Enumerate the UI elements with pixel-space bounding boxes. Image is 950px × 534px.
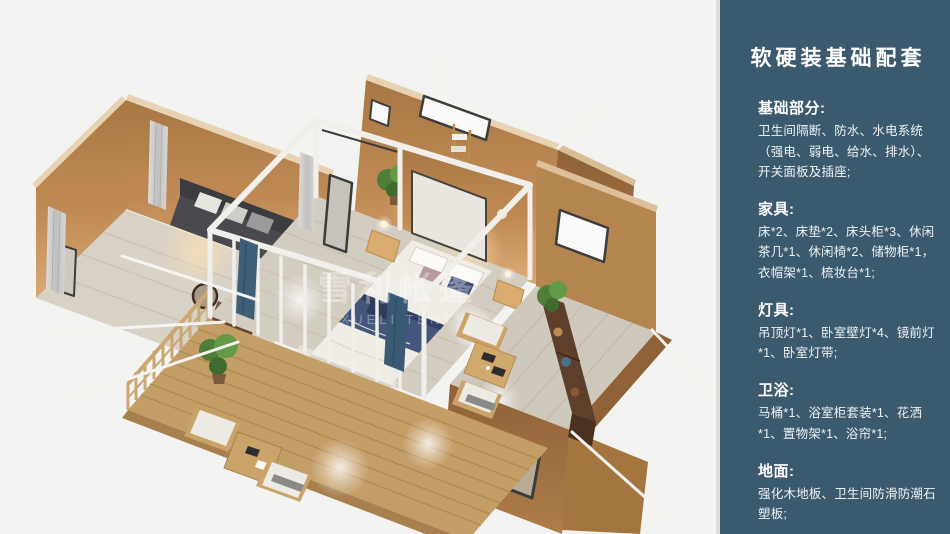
section-lighting-header: 灯具: [758, 299, 936, 320]
section-furniture-body: 床*2、床垫*2、床头柜*3、休闲茶几*1、休闲椅*2、储物柜*1，衣帽架*1、… [758, 222, 936, 283]
watermark-en: XUELI TENT [341, 312, 456, 327]
info-panel: 软硬装基础配套 基础部分: 卫生间隔断、防水、水电系统（强电、弱电、给水、排水）… [720, 0, 950, 534]
section-basics: 基础部分: 卫生间隔断、防水、水电系统（强电、弱电、给水、排水）、开关面板及插座… [758, 97, 936, 182]
doorway-curtain [298, 152, 316, 232]
section-bathroom-body: 马桶*1、浴室柜套装*1、花洒*1、置物架*1、浴帘*1; [758, 403, 936, 444]
section-furniture-header: 家具: [758, 198, 936, 219]
decor-bowl-icon [561, 357, 571, 367]
section-furniture: 家具: 床*2、床垫*2、床头柜*3、休闲茶几*1、休闲椅*2、储物柜*1，衣帽… [758, 198, 936, 283]
decor-basket-icon [571, 388, 580, 397]
panel-sections: 基础部分: 卫生间隔断、防水、水电系统（强电、弱电、给水、排水）、开关面板及插座… [758, 97, 936, 524]
section-lighting-body: 吊顶灯*1、卧室壁灯*4、镜前灯*1、卧室灯带; [758, 323, 936, 364]
section-lighting: 灯具: 吊顶灯*1、卧室壁灯*4、镜前灯*1、卧室灯带; [758, 299, 936, 364]
watermark-cn: 雪利帐篷 [318, 270, 478, 308]
section-bathroom-header: 卫浴: [758, 379, 936, 400]
section-basics-body: 卫生间隔断、防水、水电系统（强电、弱电、给水、排水）、开关面板及插座; [758, 121, 936, 182]
section-basics-header: 基础部分: [758, 97, 936, 118]
decor-basket-icon [554, 328, 563, 337]
panel-title: 软硬装基础配套 [720, 46, 950, 72]
leaning-mirror-icon [324, 175, 352, 252]
section-flooring-body: 强化木地板、卫生间防滑防潮石塑板; [758, 484, 936, 525]
section-bathroom: 卫浴: 马桶*1、浴室柜套装*1、花洒*1、置物架*1、浴帘*1; [758, 379, 936, 444]
section-flooring-header: 地面: [758, 460, 936, 481]
section-flooring: 地面: 强化木地板、卫生间防滑防潮石塑板; [758, 460, 936, 525]
watermark: 雪利帐篷 XUELI TENT [318, 270, 478, 327]
floorplan-render: 雪利帐篷 XUELI TENT [0, 0, 716, 534]
slide: 雪利帐篷 XUELI TENT 软硬装基础配套 基础部分: 卫生间隔断、防水、水… [0, 0, 950, 534]
